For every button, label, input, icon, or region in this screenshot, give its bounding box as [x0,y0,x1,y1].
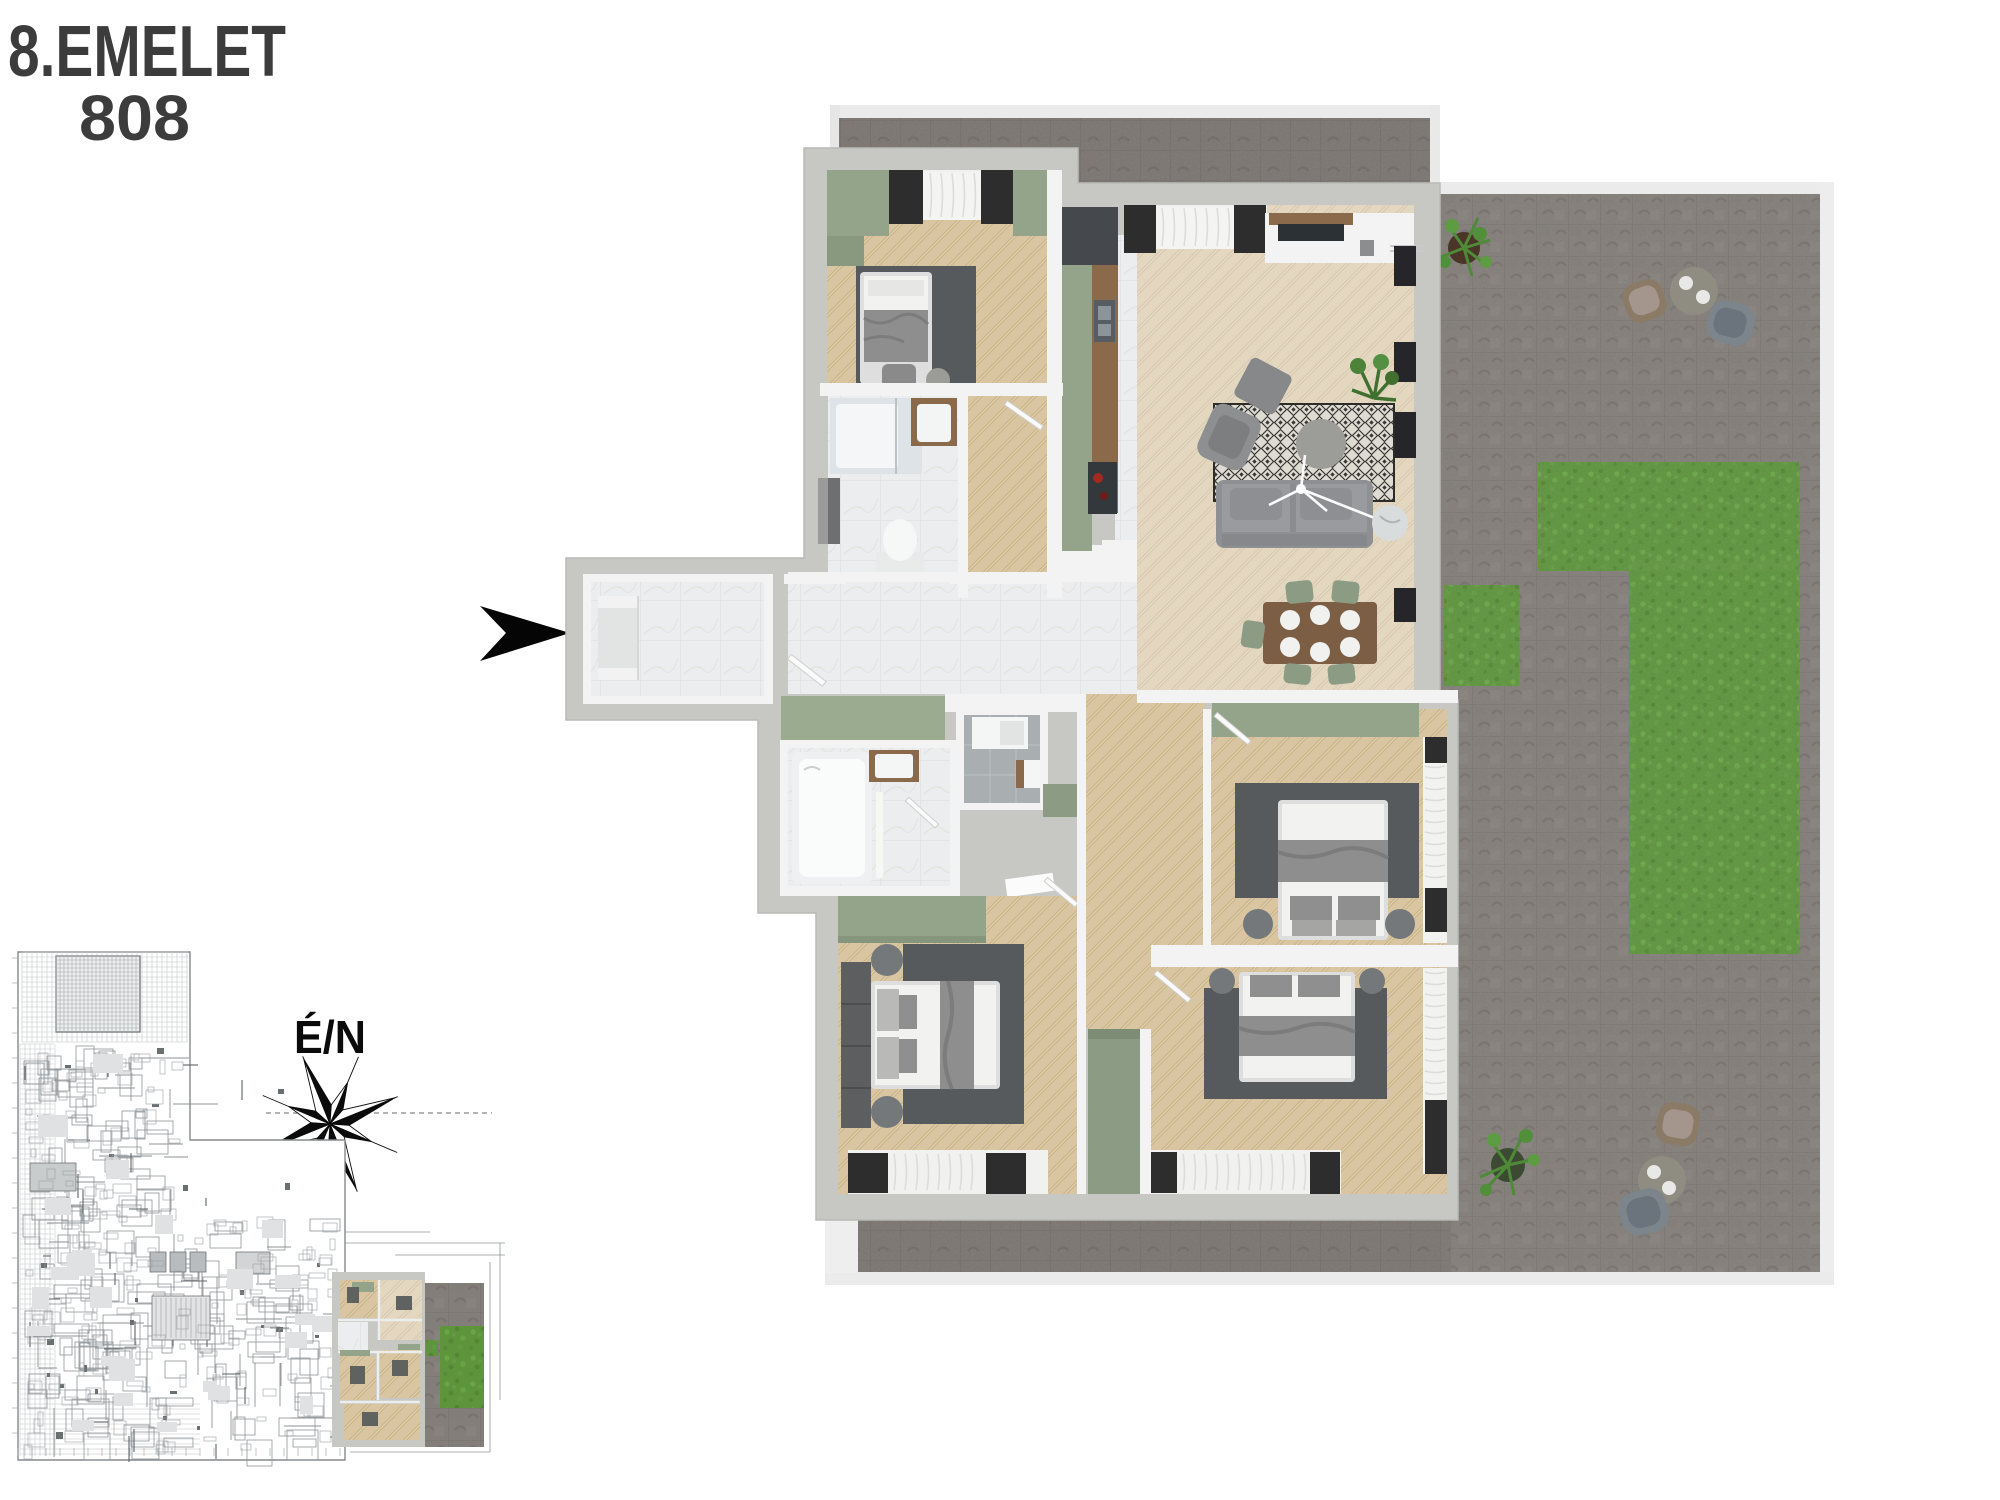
svg-text:8.EMELET: 8.EMELET [8,12,286,92]
svg-text:É/N: É/N [294,1011,366,1063]
svg-text:808: 808 [79,82,190,154]
